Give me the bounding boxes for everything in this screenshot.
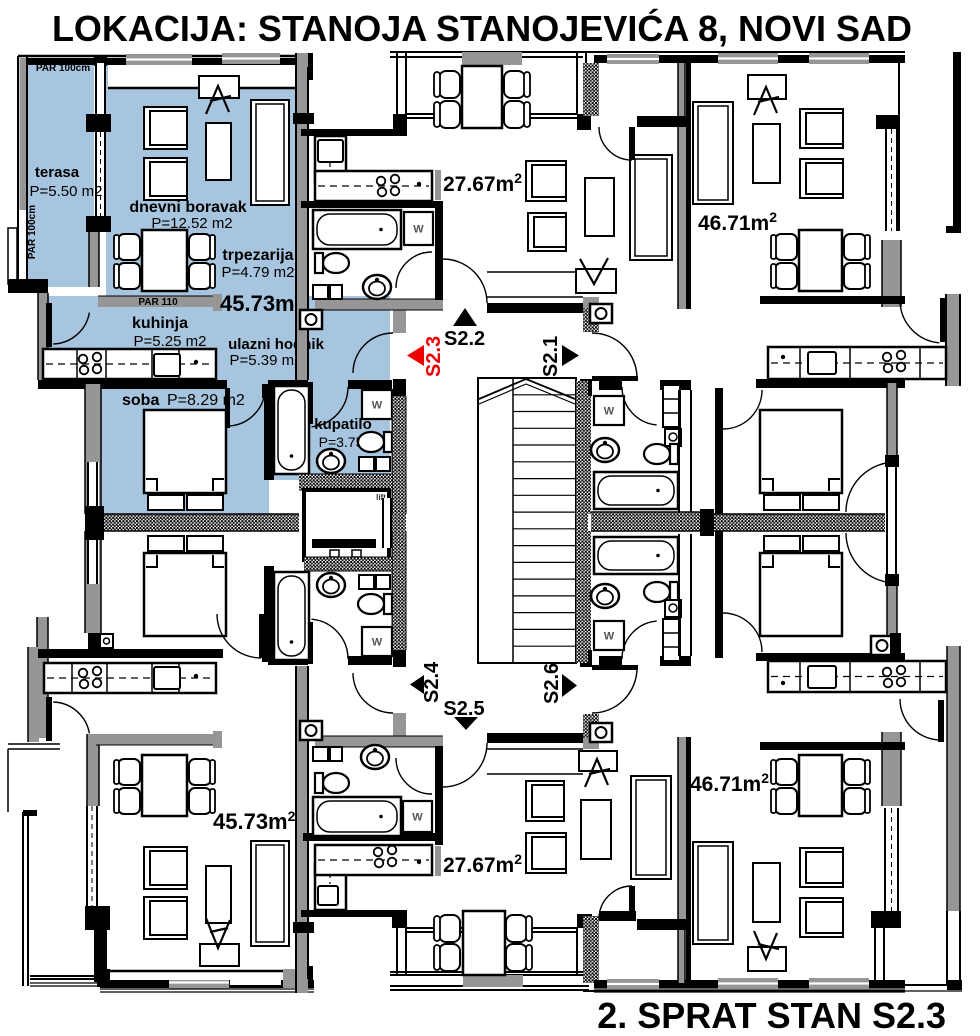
svg-text:dnevni boravak: dnevni boravak bbox=[129, 199, 246, 216]
svg-text:PAR 100cm: PAR 100cm bbox=[27, 205, 38, 259]
svg-text:W: W bbox=[604, 406, 615, 418]
svg-text:W: W bbox=[604, 631, 615, 643]
svg-text:LOKACIJA: STANOJA STANOJEVIĆA: LOKACIJA: STANOJA STANOJEVIĆA 8, NOVI SA… bbox=[52, 7, 912, 49]
svg-text:P=3.75: P=3.75 bbox=[319, 434, 364, 450]
svg-text:kuhinja: kuhinja bbox=[132, 315, 188, 332]
svg-text:P=5.25 m2: P=5.25 m2 bbox=[134, 333, 207, 350]
svg-text:S2.3: S2.3 bbox=[423, 336, 445, 377]
svg-text:46.71m2: 46.71m2 bbox=[698, 209, 777, 235]
svg-text:S2.5: S2.5 bbox=[443, 698, 484, 720]
svg-text:S2.1: S2.1 bbox=[540, 336, 562, 377]
svg-text:kupatilo: kupatilo bbox=[314, 416, 372, 433]
svg-text:2. SPRAT STAN S2.3: 2. SPRAT STAN S2.3 bbox=[597, 995, 946, 1036]
svg-text:W: W bbox=[413, 224, 424, 236]
svg-text:PAR 110: PAR 110 bbox=[138, 297, 178, 308]
svg-text:P=4.79 m2: P=4.79 m2 bbox=[222, 264, 295, 281]
svg-text:46.71m2: 46.71m2 bbox=[690, 770, 769, 796]
svg-text:terasa: terasa bbox=[35, 164, 80, 181]
svg-text:27.67m2: 27.67m2 bbox=[443, 170, 522, 196]
svg-text:W: W bbox=[372, 637, 383, 649]
svg-text:45.73m2: 45.73m2 bbox=[220, 290, 303, 316]
svg-text:W: W bbox=[372, 400, 383, 412]
svg-text:P=5.50 m2: P=5.50 m2 bbox=[30, 183, 103, 200]
svg-text:S2.2: S2.2 bbox=[444, 328, 485, 350]
svg-text:S2.6: S2.6 bbox=[541, 663, 563, 704]
svg-text:27.67m2: 27.67m2 bbox=[443, 851, 522, 877]
svg-text:ulazni hodnik: ulazni hodnik bbox=[228, 336, 324, 353]
svg-text:S2.4: S2.4 bbox=[421, 661, 443, 703]
svg-text:trpezarija: trpezarija bbox=[222, 247, 293, 264]
svg-text:P=5.39 m2: P=5.39 m2 bbox=[230, 352, 303, 369]
svg-text:P=8.29 m2: P=8.29 m2 bbox=[167, 392, 245, 409]
svg-text:45.73m2: 45.73m2 bbox=[213, 808, 296, 834]
svg-text:W: W bbox=[412, 812, 423, 824]
svg-text:PAR 100cm: PAR 100cm bbox=[36, 63, 90, 74]
svg-text:soba: soba bbox=[122, 392, 159, 409]
